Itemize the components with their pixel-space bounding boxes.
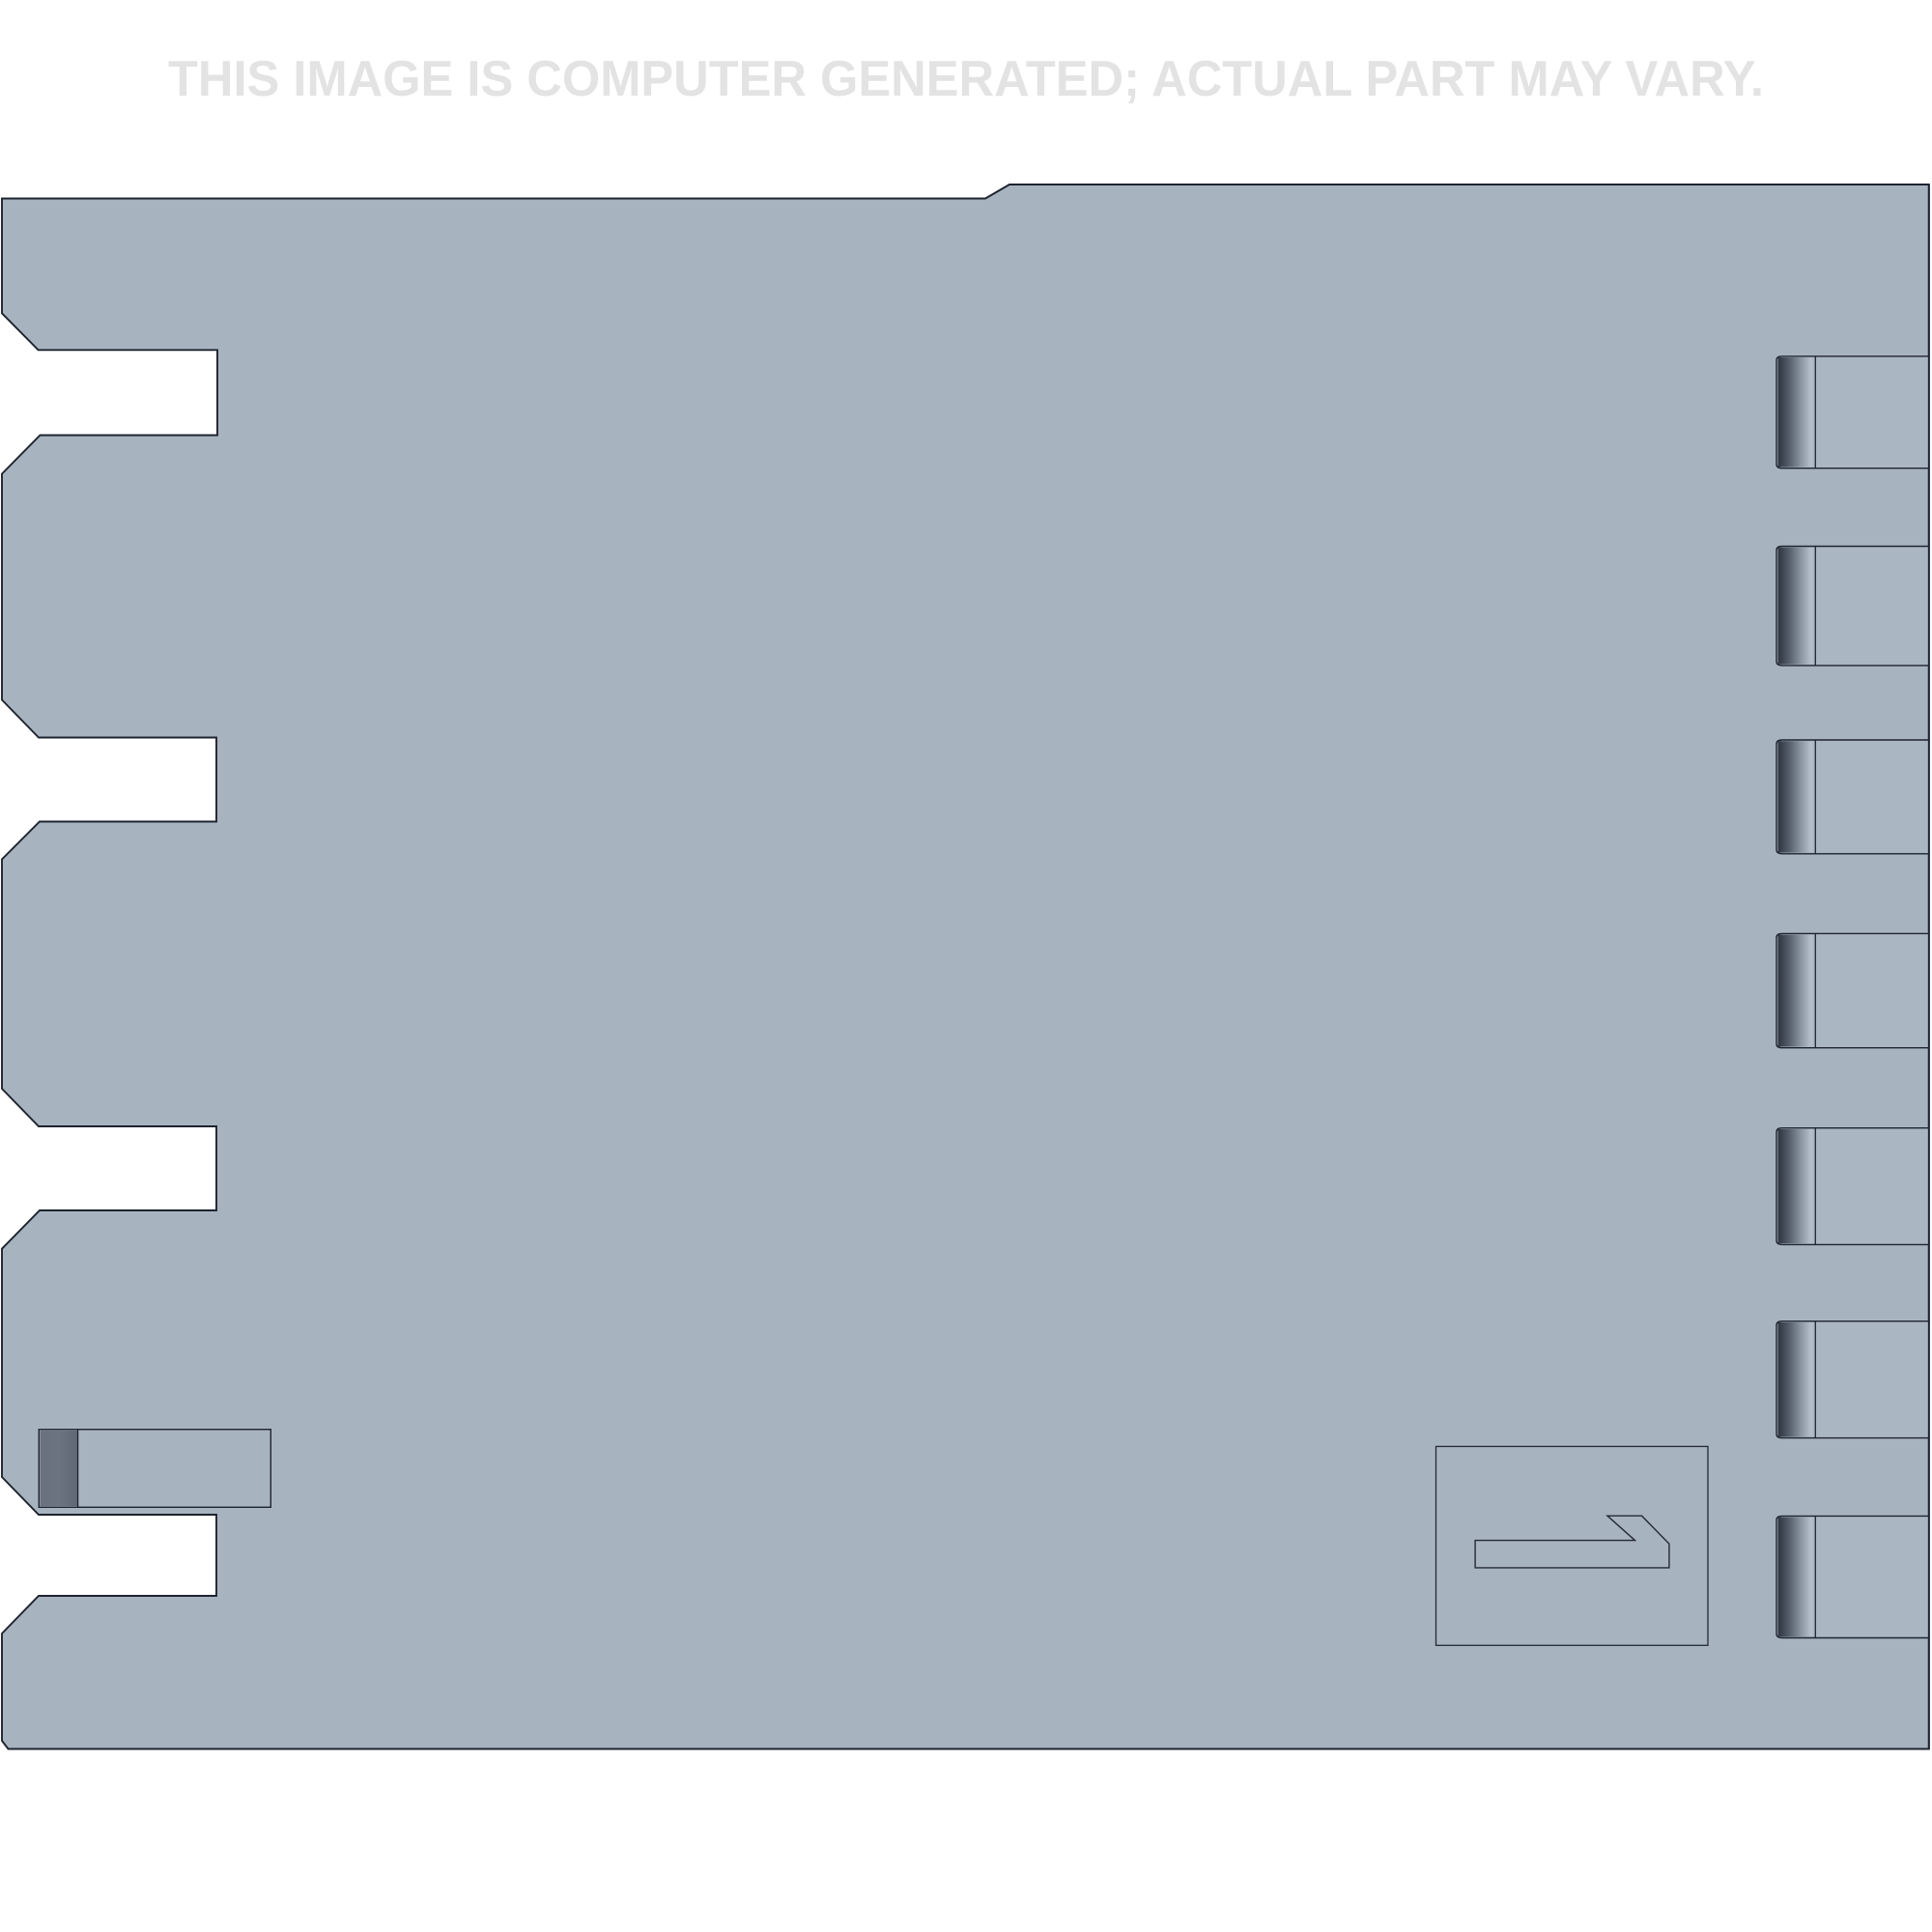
svg-text:THIS IMAGE IS COMPUTER GENERAT: THIS IMAGE IS COMPUTER GENERATED; ACTUAL… [168, 51, 1764, 107]
